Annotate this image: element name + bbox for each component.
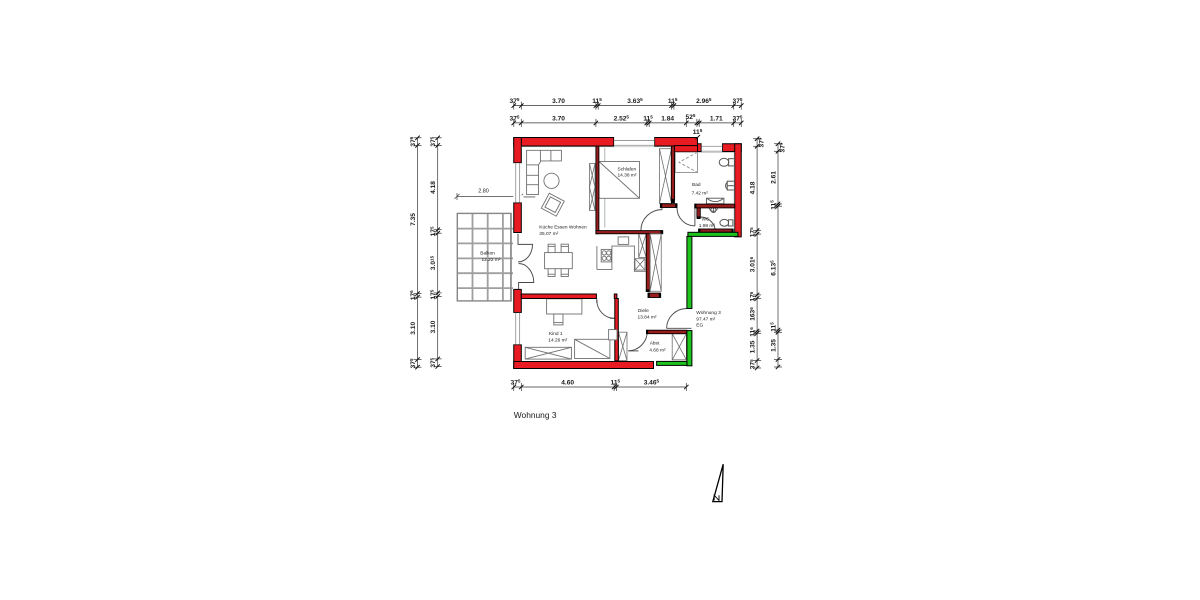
svg-text:175: 175 xyxy=(749,227,757,237)
svg-text:175: 175 xyxy=(429,226,437,236)
svg-text:7.35: 7.35 xyxy=(410,213,417,226)
svg-text:116: 116 xyxy=(749,327,757,337)
svg-text:1.71: 1.71 xyxy=(710,115,723,122)
svg-text:115: 115 xyxy=(770,322,778,332)
svg-text:4.18: 4.18 xyxy=(430,181,437,194)
svg-text:3.465: 3.465 xyxy=(644,379,660,387)
svg-text:115: 115 xyxy=(668,97,678,105)
svg-text:1.35: 1.35 xyxy=(771,339,778,352)
svg-text:176: 176 xyxy=(409,290,417,300)
svg-text:1636: 1636 xyxy=(749,307,757,321)
svg-text:115: 115 xyxy=(643,115,653,123)
svg-text:3.635: 3.635 xyxy=(627,97,643,105)
svg-text:115: 115 xyxy=(770,200,778,210)
svg-text:375: 375 xyxy=(510,115,520,123)
svg-text:1.84: 1.84 xyxy=(661,115,674,122)
svg-text:3.016: 3.016 xyxy=(749,256,757,272)
svg-text:375: 375 xyxy=(511,379,521,387)
svg-text:3.70: 3.70 xyxy=(552,98,565,105)
svg-text:4.60: 4.60 xyxy=(561,379,574,386)
svg-text:525: 525 xyxy=(686,113,696,121)
svg-text:176: 176 xyxy=(749,291,757,301)
svg-text:4.18: 4.18 xyxy=(750,181,757,194)
svg-text:375: 375 xyxy=(779,142,787,152)
svg-text:115: 115 xyxy=(592,97,602,105)
svg-text:2.965: 2.965 xyxy=(696,97,712,105)
svg-text:3.10: 3.10 xyxy=(430,320,437,333)
svg-text:3.10: 3.10 xyxy=(410,322,417,335)
svg-text:2.61: 2.61 xyxy=(771,171,778,184)
svg-text:115: 115 xyxy=(611,379,621,387)
svg-text:3.015: 3.015 xyxy=(429,255,437,270)
svg-text:6.135: 6.135 xyxy=(770,260,778,276)
svg-text:375: 375 xyxy=(510,97,520,105)
svg-text:2.525: 2.525 xyxy=(614,115,630,123)
svg-text:115: 115 xyxy=(693,128,703,136)
svg-text:175: 175 xyxy=(429,289,437,299)
svg-text:3.70: 3.70 xyxy=(552,115,565,122)
svg-text:375: 375 xyxy=(758,137,766,147)
svg-text:1.35: 1.35 xyxy=(750,340,757,353)
